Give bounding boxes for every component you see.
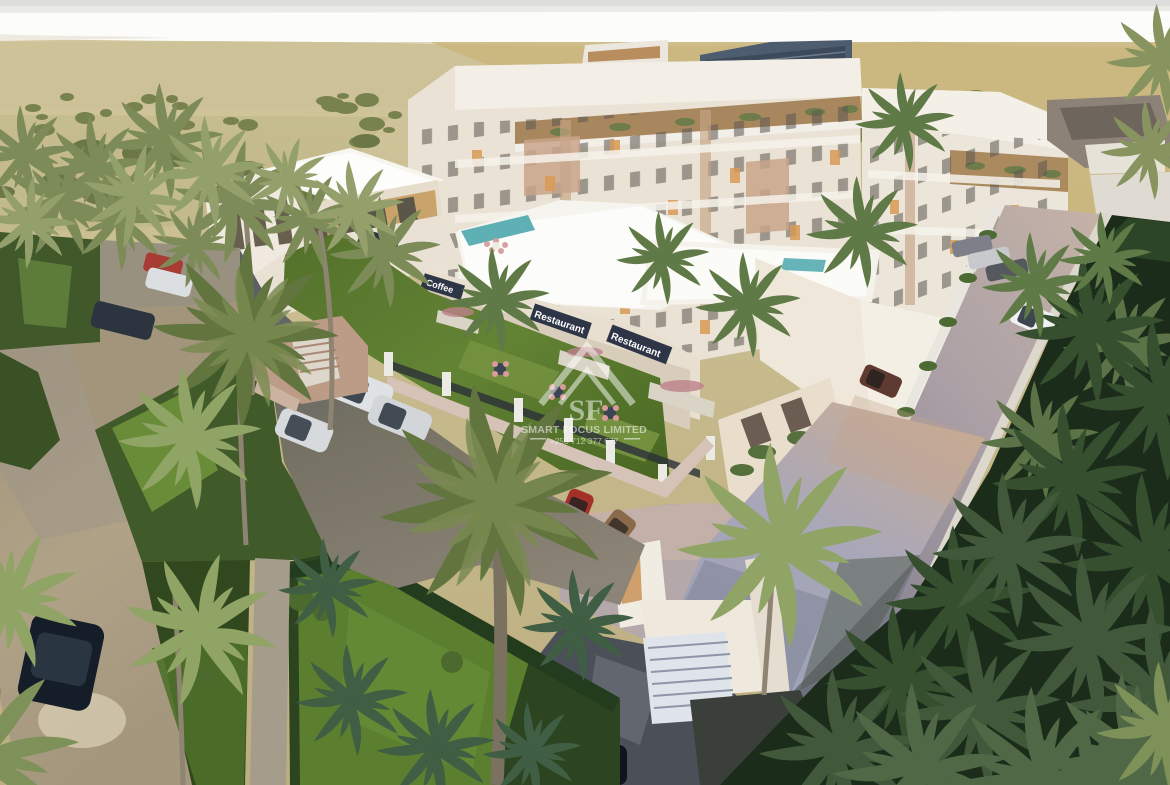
svg-text:SMART FOCUS LIMITED: SMART FOCUS LIMITED	[521, 424, 647, 436]
svg-text:SF: SF	[568, 394, 603, 427]
svg-text:+255 712 377 677: +255 712 377 677	[550, 436, 619, 446]
